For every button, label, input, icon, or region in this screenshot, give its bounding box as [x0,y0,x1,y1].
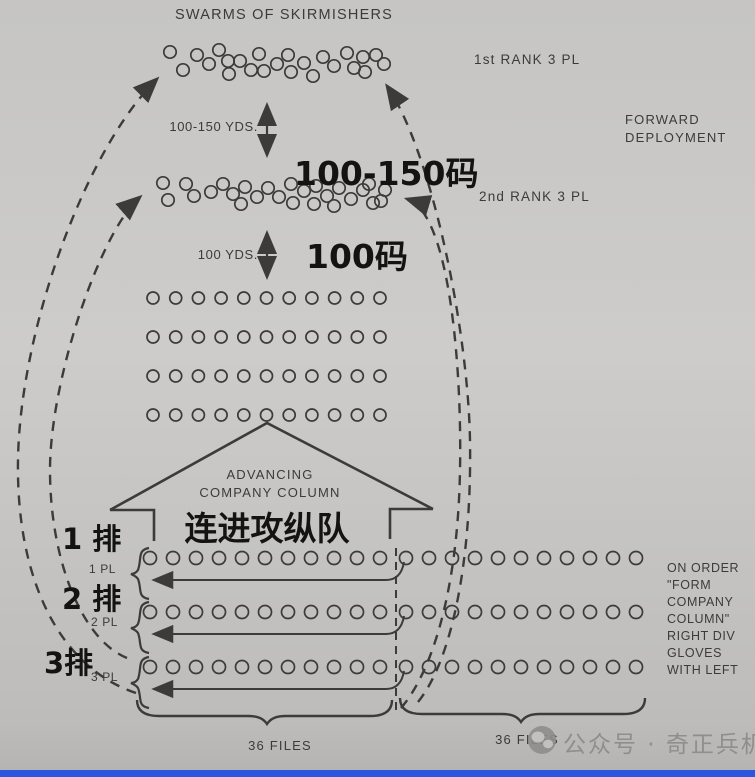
wechat-bubble-small [543,740,553,748]
forward-deployment-label-line1: FORWARD [625,112,700,127]
distance-label-100-cn: 100码 [306,237,408,276]
forward-deployment-label-line2: DEPLOYMENT [625,130,727,145]
tactical-diagram-page: SWARMS OF SKIRMISHERS 1st RANK 3 PL 2nd … [0,0,755,777]
rank2-label: 2nd RANK 3 PL [479,189,590,204]
platoon3-label-cn: 3排 [44,646,93,680]
advancing-label-cn: 连进攻纵队 [185,509,351,548]
files-count-left: 36 FILES [248,738,312,753]
advancing-label-line1: ADVANCING [226,467,313,482]
diagram-title: SWARMS OF SKIRMISHERS [175,7,393,23]
platoon3-label: 3 PL [91,670,118,684]
order-note-line3: COMPANY [667,595,734,609]
distance-label-100-150-cn: 100-150码 [294,154,478,193]
rank1-label: 1st RANK 3 PL [474,52,580,67]
order-note-line6: GLOVES [667,646,722,660]
order-note-line1: ON ORDER [667,561,739,575]
distance-label-100: 100 YDS. [198,247,258,262]
diagram-canvas: SWARMS OF SKIRMISHERS 1st RANK 3 PL 2nd … [0,0,755,777]
platoon2-label: 2 PL [91,615,118,629]
platoon2-label-cn: 2 排 [62,582,121,616]
advancing-label-line2: COMPANY COLUMN [199,485,340,500]
watermark-text: 公众号 · 奇正兵机 [563,732,755,758]
platoon1-label-cn: 1 排 [62,522,121,556]
bottom-blue-bar [0,770,755,777]
order-note-line2: "FORM [667,578,711,592]
order-note-line5: RIGHT DIV [667,629,735,643]
order-note-line7: WITH LEFT [667,663,738,677]
platoon1-label: 1 PL [89,562,116,576]
wechat-bubble-large [532,732,545,743]
order-note-line4: COLUMN" [667,612,730,626]
distance-label-100-150: 100-150 YDS. [169,119,258,134]
